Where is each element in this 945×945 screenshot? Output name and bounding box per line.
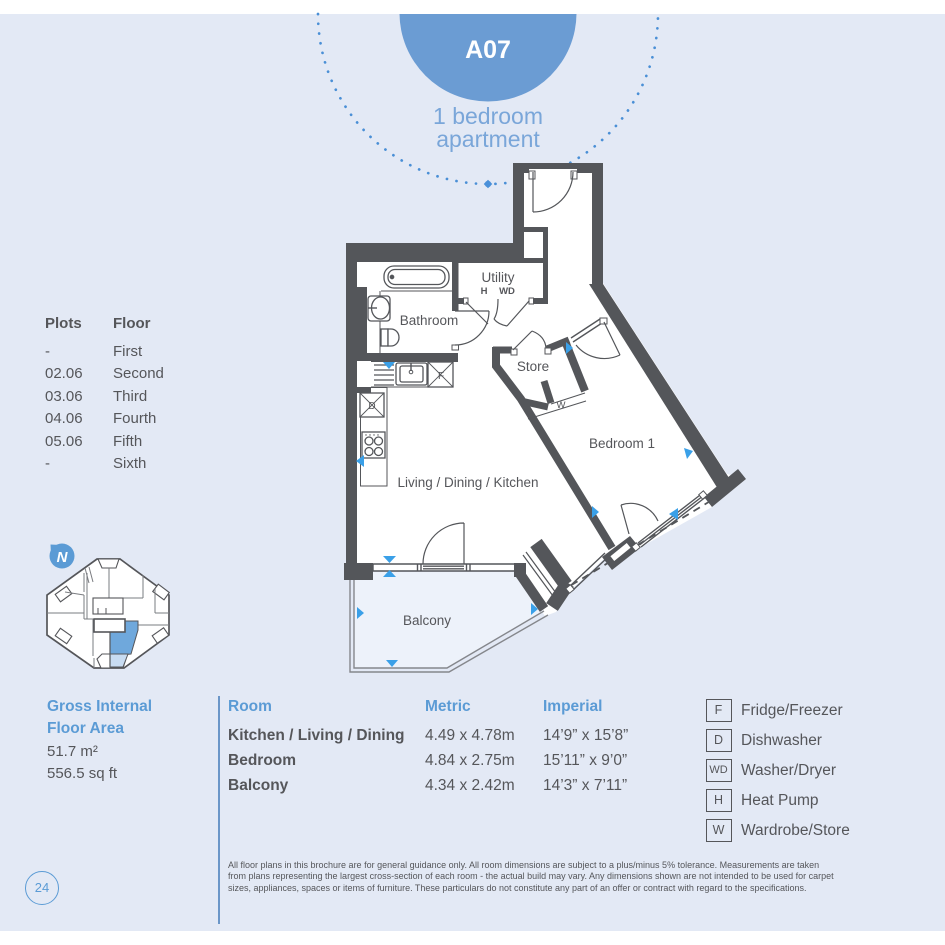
svg-text:WD: WD (499, 286, 515, 297)
svg-text:D: D (368, 401, 375, 412)
svg-text:H: H (481, 286, 488, 297)
svg-text:Bedroom 1: Bedroom 1 (589, 436, 655, 451)
svg-text:Balcony: Balcony (403, 613, 451, 628)
svg-text:W: W (557, 400, 566, 411)
svg-text:Store: Store (517, 359, 549, 374)
svg-text:Living / Dining / Kitchen: Living / Dining / Kitchen (397, 475, 538, 490)
svg-text:Utility: Utility (482, 270, 515, 285)
svg-text:F: F (438, 371, 444, 382)
svg-text:Bathroom: Bathroom (400, 313, 459, 328)
